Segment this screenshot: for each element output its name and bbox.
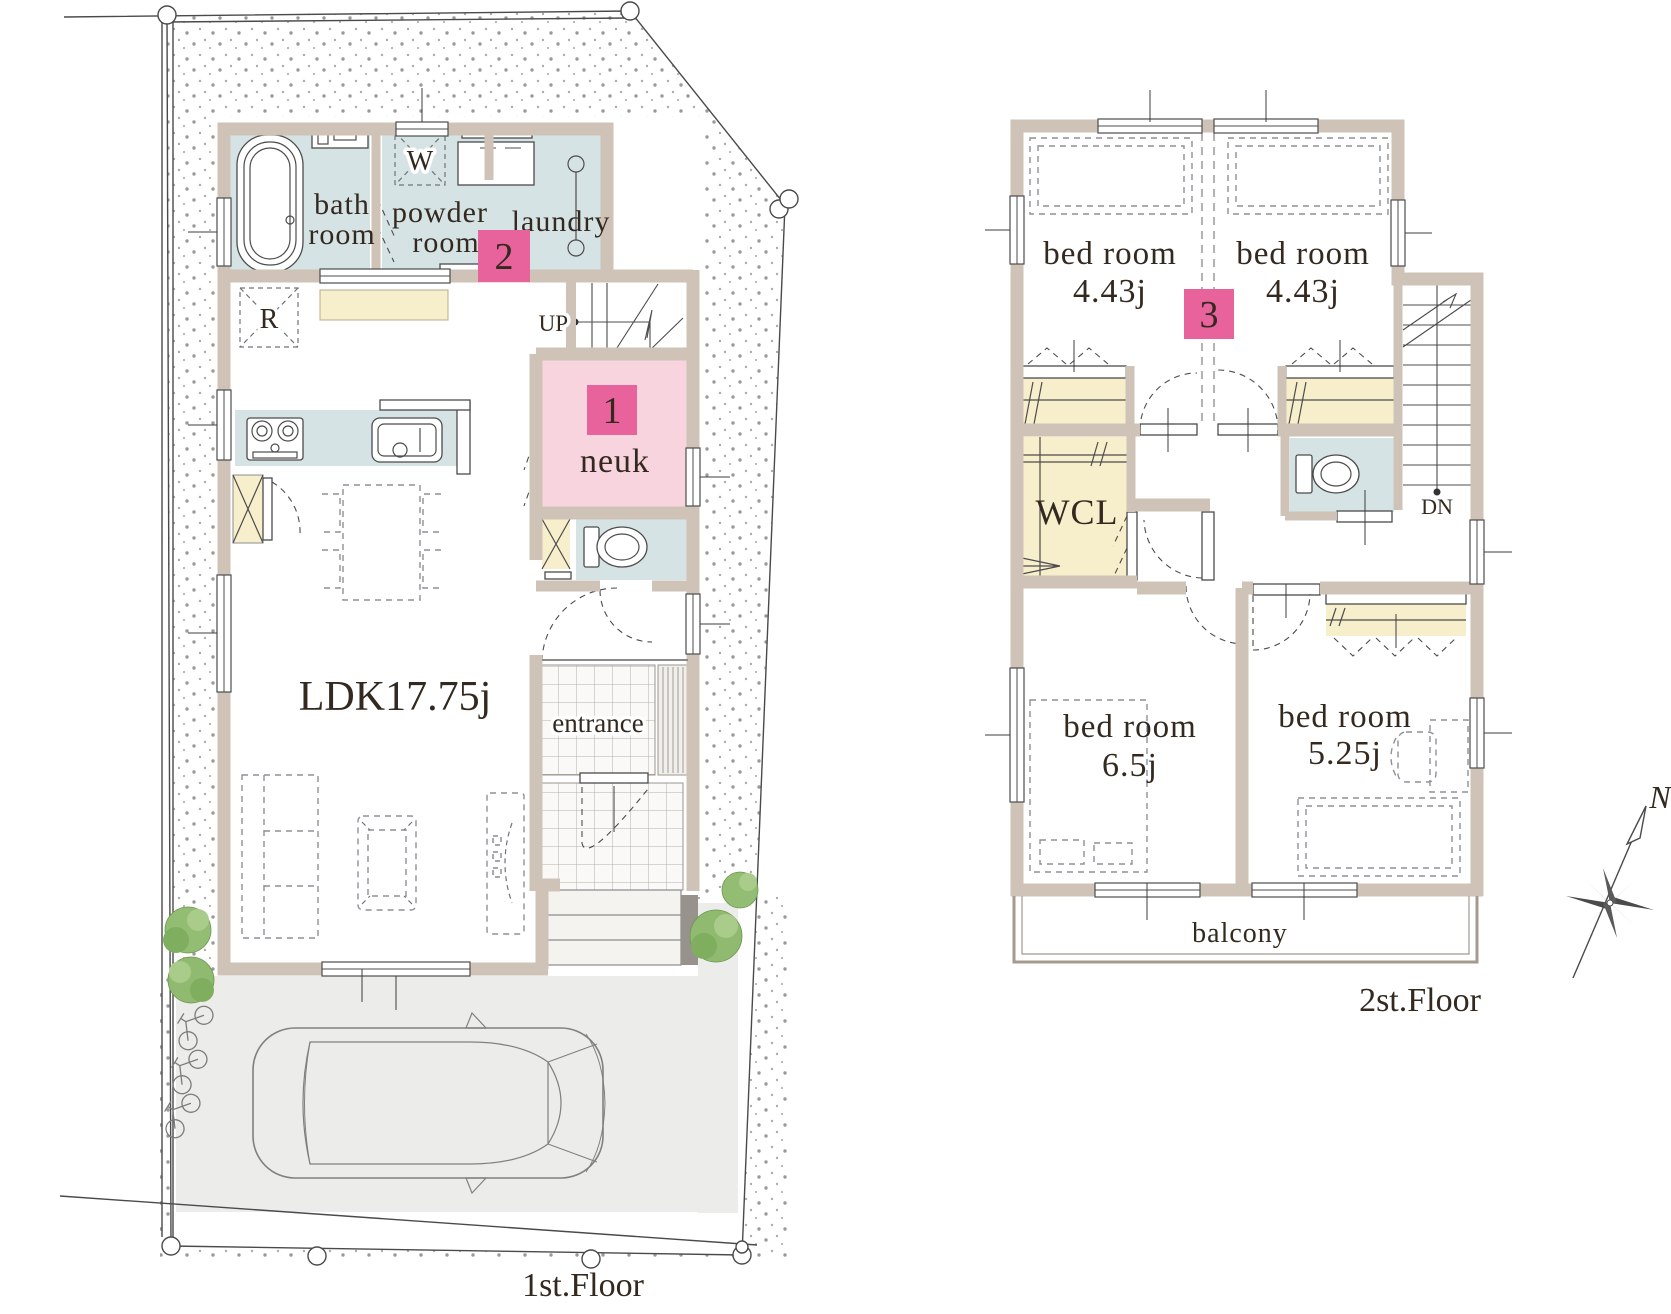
balcony-label: balcony [1192, 918, 1288, 949]
window-icon [1470, 520, 1484, 584]
coffee-table-icon [358, 816, 416, 910]
badge-3: 3 [1184, 289, 1234, 339]
stairs-up [572, 283, 684, 352]
bedroom2-size: 4.43j [1266, 273, 1340, 310]
badge-2: 2 [478, 230, 530, 282]
kitchen-bench [320, 290, 448, 320]
bath-room-label-2: room [308, 218, 375, 251]
north-label: N [1648, 779, 1671, 815]
stove-icon [247, 418, 303, 460]
window-icon [396, 122, 448, 136]
bedroom4-size: 5.25j [1308, 735, 1382, 772]
window-icon [1391, 200, 1405, 266]
window-icon [686, 448, 700, 506]
bedroom4-name: bed room [1278, 699, 1412, 735]
bedroom3-name: bed room [1063, 709, 1197, 745]
tree-icon [168, 957, 214, 1003]
stairs-down [1403, 285, 1471, 496]
tree-icon [690, 910, 742, 962]
bath-room-label-1: bath [314, 188, 370, 221]
up-mark: UP [539, 311, 568, 336]
wcl-label: WCL [1036, 492, 1119, 532]
toilet1-closet-doorstep [545, 572, 571, 579]
tv-board-icon [487, 793, 524, 934]
chair-icon [1391, 732, 1436, 782]
window-icon [217, 198, 231, 266]
window-icon [217, 390, 231, 460]
window-icon [1010, 196, 1024, 264]
bed-icon [1030, 138, 1192, 214]
svg-text:2: 2 [495, 236, 514, 278]
dn-mark: DN [1421, 494, 1453, 519]
window-icon [320, 269, 450, 283]
tree-icon [722, 872, 758, 908]
floor1-caption: 1st.Floor [522, 1267, 645, 1304]
driveway [176, 976, 736, 1212]
toilet1-icon [584, 527, 647, 567]
window-icon [322, 962, 470, 976]
window-icon [1010, 668, 1024, 802]
porch-steps [543, 890, 681, 965]
window-icon [217, 575, 231, 692]
floor-plan-page: bath room powder room laundry W R UP neu… [0, 0, 1671, 1314]
bed-icon [1298, 798, 1460, 876]
compass-star-icon [1566, 868, 1654, 938]
floor-plan-drawing: bath room powder room laundry W R UP neu… [0, 0, 1671, 1314]
svg-text:1: 1 [603, 390, 622, 432]
bedroom3-size: 6.5j [1102, 747, 1158, 784]
fridge-mark: R [260, 304, 279, 335]
badge-1: 1 [587, 385, 637, 435]
neuk-label: neuk [580, 443, 650, 480]
entrance-step-band [658, 665, 688, 775]
bedroom-partition [1202, 133, 1214, 424]
floor2-plan: bed room 4.43j bed room 4.43j WCL DN bed… [985, 90, 1512, 962]
washer-mark: W [407, 146, 434, 177]
bedroom1-name: bed room [1043, 236, 1177, 272]
svg-text:3: 3 [1200, 294, 1219, 336]
ldk-closet-door [263, 478, 272, 540]
powder-room-label-1: powder [392, 196, 488, 229]
floor1-plan: bath room powder room laundry W R UP neu… [188, 88, 730, 1010]
entrance-label: entrance [552, 708, 643, 738]
sofa-icon [242, 775, 318, 938]
window-icon [686, 594, 700, 654]
dining-table-icon [322, 485, 441, 600]
bedroom1-size: 4.43j [1073, 273, 1147, 310]
toilet2-icon [1296, 455, 1359, 493]
compass-rose: N [1566, 779, 1671, 978]
powder-room-label-2: room [412, 226, 479, 259]
floor2-caption: 2st.Floor [1359, 982, 1482, 1019]
ldk-closet-arc [272, 482, 300, 534]
porch-tiles [540, 783, 683, 890]
desk-icon [1430, 720, 1468, 792]
window-icon [1470, 698, 1484, 768]
ldk-label: LDK17.75j [299, 674, 492, 720]
bedroom2-name: bed room [1236, 236, 1370, 272]
bed-icon [1228, 138, 1388, 214]
vanity-icon [458, 128, 534, 185]
